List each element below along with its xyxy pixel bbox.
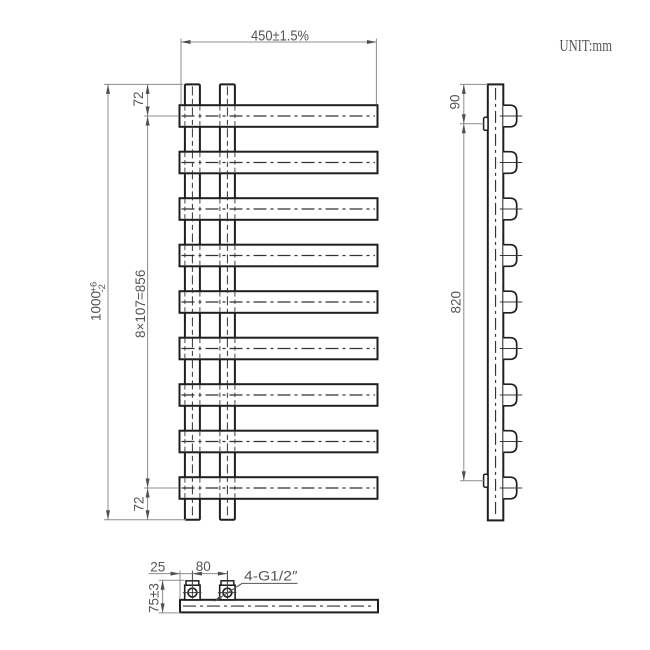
svg-text:25: 25 <box>150 560 165 575</box>
svg-text:8×107=856: 8×107=856 <box>133 270 148 338</box>
svg-text:450±1.5%: 450±1.5% <box>251 28 309 45</box>
svg-text:80: 80 <box>196 559 211 574</box>
svg-text:72: 72 <box>131 91 146 106</box>
svg-text:-2: -2 <box>97 284 108 292</box>
svg-text:UNIT:mm: UNIT:mm <box>560 36 613 55</box>
svg-text:72: 72 <box>132 496 147 511</box>
svg-text:4-G1/2″: 4-G1/2″ <box>244 568 298 584</box>
svg-text:75±3: 75±3 <box>147 583 162 613</box>
svg-text:820: 820 <box>449 291 464 314</box>
svg-text:90: 90 <box>448 94 463 109</box>
svg-text:1000: 1000 <box>89 291 104 321</box>
